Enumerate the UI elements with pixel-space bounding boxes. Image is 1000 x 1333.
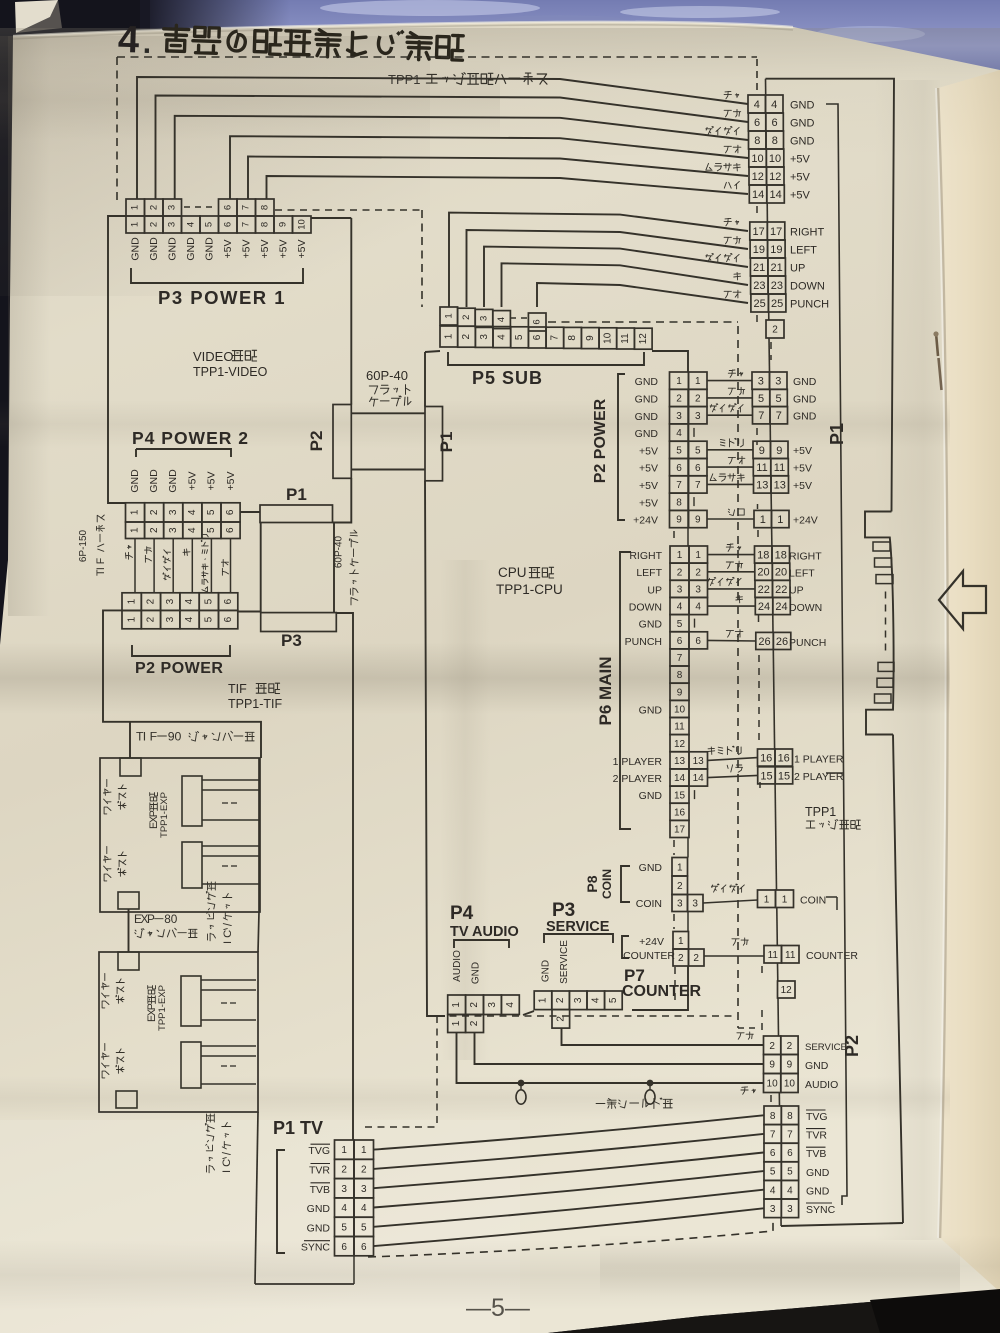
svg-text:6: 6 xyxy=(771,117,777,129)
svg-text:1: 1 xyxy=(451,1020,462,1026)
svg-text:16: 16 xyxy=(778,753,790,765)
svg-text:2: 2 xyxy=(676,394,682,405)
svg-text:P1 TV: P1 TV xyxy=(273,1118,323,1138)
svg-text:GND: GND xyxy=(204,237,216,261)
svg-text:8: 8 xyxy=(772,135,778,147)
svg-text:GND: GND xyxy=(307,1222,331,1234)
svg-text:GND: GND xyxy=(790,118,815,130)
svg-text:9: 9 xyxy=(677,687,683,698)
svg-text:7: 7 xyxy=(770,1130,776,1141)
svg-text:1: 1 xyxy=(451,1002,462,1008)
svg-text:+5V: +5V xyxy=(241,240,253,259)
svg-text:GND: GND xyxy=(793,393,817,405)
svg-text:12: 12 xyxy=(769,171,781,183)
svg-text:6: 6 xyxy=(225,527,236,533)
svg-text:4: 4 xyxy=(184,598,195,604)
svg-text:11: 11 xyxy=(768,950,779,961)
svg-text:.: . xyxy=(142,27,151,60)
svg-text:+5V: +5V xyxy=(222,240,234,259)
svg-text:GND: GND xyxy=(635,376,659,388)
svg-text:13: 13 xyxy=(674,756,686,767)
svg-text:P2 POWER: P2 POWER xyxy=(592,398,609,483)
svg-text:22: 22 xyxy=(758,584,770,596)
svg-text:GND: GND xyxy=(541,960,552,982)
svg-text:AUDIO: AUDIO xyxy=(452,950,463,982)
svg-text:GND: GND xyxy=(635,428,659,440)
svg-text:6: 6 xyxy=(223,616,234,622)
svg-text:UP: UP xyxy=(790,263,805,275)
svg-text:14: 14 xyxy=(769,189,781,201)
svg-text:P4: P4 xyxy=(450,903,474,924)
svg-text:2: 2 xyxy=(772,325,778,336)
svg-text:SYNC: SYNC xyxy=(806,1204,836,1216)
svg-text:+5V: +5V xyxy=(793,445,812,457)
svg-text:5: 5 xyxy=(770,1167,776,1178)
svg-text:+5V: +5V xyxy=(790,190,811,202)
svg-text:F: F xyxy=(150,729,158,743)
svg-text:19: 19 xyxy=(753,244,765,256)
svg-text:—5—: —5— xyxy=(466,1294,530,1322)
svg-text:1: 1 xyxy=(695,550,701,561)
svg-text:3: 3 xyxy=(165,616,176,622)
svg-text:P8: P8 xyxy=(584,875,600,892)
svg-text:2: 2 xyxy=(469,1020,480,1026)
svg-text:+5V: +5V xyxy=(186,472,198,491)
svg-text:P1: P1 xyxy=(437,432,456,453)
svg-text:9: 9 xyxy=(676,515,682,526)
svg-text:GND: GND xyxy=(167,469,179,493)
svg-text:7: 7 xyxy=(787,1130,793,1141)
svg-text:+5V: +5V xyxy=(793,480,812,492)
svg-text:9: 9 xyxy=(278,222,289,227)
svg-text:P1: P1 xyxy=(827,423,847,445)
svg-text:6: 6 xyxy=(223,598,234,604)
svg-text:8: 8 xyxy=(787,1111,793,1122)
svg-text:F: F xyxy=(95,557,107,564)
svg-text:10: 10 xyxy=(784,1079,796,1090)
svg-text:4: 4 xyxy=(695,602,701,613)
svg-text:COUNTER: COUNTER xyxy=(622,983,702,1000)
svg-text:3: 3 xyxy=(758,376,764,388)
svg-text:VIDEO: VIDEO xyxy=(193,349,233,364)
svg-text:3: 3 xyxy=(168,509,179,515)
svg-text:GND: GND xyxy=(790,136,815,148)
svg-text:0: 0 xyxy=(171,912,178,926)
svg-text:7: 7 xyxy=(241,222,252,227)
svg-text:TPP1: TPP1 xyxy=(388,72,421,87)
svg-text:GND: GND xyxy=(148,469,160,493)
svg-text:7: 7 xyxy=(758,410,764,422)
svg-text:6: 6 xyxy=(222,222,233,227)
svg-text:3: 3 xyxy=(573,997,584,1003)
svg-text:2: 2 xyxy=(361,1165,367,1176)
svg-text:UP: UP xyxy=(647,584,662,596)
svg-text:24: 24 xyxy=(758,601,770,613)
svg-text:6: 6 xyxy=(222,205,233,210)
svg-text:GND: GND xyxy=(793,376,817,388)
svg-text:P6 MAIN: P6 MAIN xyxy=(596,657,615,726)
svg-text:1: 1 xyxy=(676,376,682,387)
svg-text:+5V: +5V xyxy=(259,240,271,259)
svg-text:+5V: +5V xyxy=(790,154,811,166)
svg-text:9: 9 xyxy=(695,515,701,526)
svg-text:TPP1-CPU: TPP1-CPU xyxy=(496,582,563,597)
svg-text:14: 14 xyxy=(752,189,764,201)
svg-text:+5V: +5V xyxy=(639,463,658,475)
svg-text:0: 0 xyxy=(175,729,182,743)
svg-text:+5V: +5V xyxy=(296,240,308,259)
svg-text:SERVICE: SERVICE xyxy=(546,919,610,935)
svg-text:2: 2 xyxy=(769,1041,775,1052)
svg-text:6: 6 xyxy=(695,636,701,647)
svg-text:COIN: COIN xyxy=(600,869,614,899)
svg-text:19: 19 xyxy=(770,244,782,256)
svg-text:13: 13 xyxy=(756,479,768,491)
svg-text:4: 4 xyxy=(771,99,777,111)
svg-text:P2 POWER: P2 POWER xyxy=(135,660,223,677)
svg-text:8: 8 xyxy=(754,135,760,147)
svg-text:1: 1 xyxy=(538,997,549,1003)
svg-text:3: 3 xyxy=(479,316,490,321)
svg-text:SERVICE: SERVICE xyxy=(805,1042,847,1053)
svg-text:DOWN: DOWN xyxy=(789,602,822,614)
svg-text:8: 8 xyxy=(677,670,683,681)
svg-text:2: 2 xyxy=(695,394,701,405)
svg-text:CPU: CPU xyxy=(498,565,527,580)
svg-text:9: 9 xyxy=(776,445,782,457)
svg-text:TVB: TVB xyxy=(806,1148,826,1160)
svg-text:+5V: +5V xyxy=(639,480,658,492)
svg-text:4: 4 xyxy=(770,1185,776,1196)
svg-text:12: 12 xyxy=(752,171,764,183)
svg-text:P2: P2 xyxy=(307,431,326,452)
svg-text:GND: GND xyxy=(806,1167,830,1179)
svg-text:2: 2 xyxy=(678,953,684,964)
svg-text:2: 2 xyxy=(695,567,701,578)
svg-text:7: 7 xyxy=(695,480,701,491)
svg-text:GND: GND xyxy=(639,862,663,874)
svg-text:+5V: +5V xyxy=(206,472,218,491)
svg-text:1: 1 xyxy=(130,205,141,210)
svg-text:6: 6 xyxy=(754,117,760,129)
svg-text:5: 5 xyxy=(695,445,701,456)
svg-text:9: 9 xyxy=(585,335,596,341)
svg-text:5: 5 xyxy=(206,509,217,515)
svg-text:13: 13 xyxy=(774,479,786,491)
svg-text:25: 25 xyxy=(753,298,765,310)
svg-text:2: 2 xyxy=(555,1016,566,1022)
svg-text:3: 3 xyxy=(165,598,176,604)
svg-text:C: C xyxy=(221,1159,233,1167)
svg-text:6: 6 xyxy=(787,1148,793,1159)
svg-text:25: 25 xyxy=(771,298,783,310)
svg-text:5: 5 xyxy=(203,598,214,604)
svg-text:4: 4 xyxy=(676,428,682,439)
svg-text:P4 POWER 2: P4 POWER 2 xyxy=(132,428,249,448)
svg-text:20: 20 xyxy=(775,567,787,579)
svg-text:3: 3 xyxy=(787,1204,793,1215)
svg-text:1: 1 xyxy=(126,616,137,622)
svg-text:SERVICE: SERVICE xyxy=(559,940,570,984)
svg-text:16: 16 xyxy=(760,753,772,765)
svg-text:2 PLAYER: 2 PLAYER xyxy=(613,773,663,785)
svg-text:6: 6 xyxy=(341,1242,347,1253)
svg-text:1 PLAYER: 1 PLAYER xyxy=(613,756,663,768)
svg-text:17: 17 xyxy=(674,825,686,836)
svg-text:2: 2 xyxy=(461,315,472,320)
svg-text:4: 4 xyxy=(590,997,601,1003)
svg-text:+5V: +5V xyxy=(790,172,811,184)
svg-text:GND: GND xyxy=(639,619,663,631)
svg-text:21: 21 xyxy=(770,262,782,274)
svg-text:1: 1 xyxy=(678,936,684,947)
svg-text:10: 10 xyxy=(769,153,781,165)
svg-text:3: 3 xyxy=(487,1002,498,1008)
svg-text:UP: UP xyxy=(789,585,804,597)
svg-text:GND: GND xyxy=(307,1203,331,1215)
svg-text:14: 14 xyxy=(674,773,686,784)
svg-text:17: 17 xyxy=(752,226,764,238)
svg-text:4: 4 xyxy=(787,1185,793,1196)
svg-text:23: 23 xyxy=(771,280,783,292)
svg-text:5: 5 xyxy=(514,334,525,340)
svg-text:15: 15 xyxy=(674,790,686,801)
svg-text:8: 8 xyxy=(676,497,682,508)
svg-text:6: 6 xyxy=(677,636,683,647)
svg-text:11: 11 xyxy=(674,722,685,733)
svg-text:TPP1-VIDEO: TPP1-VIDEO xyxy=(193,365,268,379)
svg-text:+5V: +5V xyxy=(639,497,658,509)
svg-text:2: 2 xyxy=(149,509,160,515)
svg-text:8: 8 xyxy=(770,1111,776,1122)
svg-text:8: 8 xyxy=(259,205,270,210)
svg-text:P5 SUB: P5 SUB xyxy=(472,368,543,388)
svg-text:5: 5 xyxy=(204,222,215,227)
svg-text:11: 11 xyxy=(774,462,785,474)
svg-text:1: 1 xyxy=(130,527,141,533)
svg-text:TVR: TVR xyxy=(806,1130,827,1142)
svg-text:TVG: TVG xyxy=(308,1145,330,1157)
svg-text:+5V: +5V xyxy=(793,463,812,475)
svg-text:SYNC: SYNC xyxy=(301,1242,331,1254)
svg-text:8: 8 xyxy=(259,222,270,227)
svg-text:2: 2 xyxy=(677,881,683,892)
svg-text:5: 5 xyxy=(206,527,217,533)
svg-text:12: 12 xyxy=(781,985,793,996)
svg-text:11: 11 xyxy=(785,950,796,961)
svg-text:GND: GND xyxy=(130,237,142,261)
svg-text:60P-40: 60P-40 xyxy=(366,368,408,383)
svg-text:4: 4 xyxy=(341,1203,347,1214)
svg-text:2: 2 xyxy=(146,598,157,604)
svg-text:9: 9 xyxy=(769,1060,775,1071)
svg-text:2: 2 xyxy=(693,953,699,964)
svg-text:GND: GND xyxy=(639,790,663,802)
svg-text:RIGHT: RIGHT xyxy=(789,550,822,562)
svg-text:+5V: +5V xyxy=(225,472,237,491)
svg-text:1: 1 xyxy=(695,376,701,387)
svg-text:P3: P3 xyxy=(281,631,302,650)
svg-text:16: 16 xyxy=(674,807,686,818)
svg-text:6P-150: 6P-150 xyxy=(78,529,89,562)
svg-text:TPP1-EXP: TPP1-EXP xyxy=(157,985,168,1031)
svg-text:7: 7 xyxy=(550,334,561,340)
svg-text:7: 7 xyxy=(676,480,682,491)
svg-text:3: 3 xyxy=(341,1184,347,1195)
svg-text:1 PLAYER: 1 PLAYER xyxy=(794,753,844,765)
svg-text:5: 5 xyxy=(361,1223,367,1234)
svg-text:+5V: +5V xyxy=(639,445,658,457)
svg-text:COUNTER: COUNTER xyxy=(806,950,858,962)
svg-text:COIN: COIN xyxy=(800,895,826,907)
svg-text:TIF: TIF xyxy=(228,682,247,696)
svg-text:1: 1 xyxy=(443,313,454,318)
svg-text:GND: GND xyxy=(793,411,817,423)
svg-text:RIGHT: RIGHT xyxy=(629,550,662,562)
svg-text:3: 3 xyxy=(775,376,781,388)
svg-text:11: 11 xyxy=(620,333,631,344)
svg-text:4: 4 xyxy=(117,19,139,62)
svg-text:23: 23 xyxy=(753,280,765,292)
svg-text:3: 3 xyxy=(770,1204,776,1215)
svg-text:17: 17 xyxy=(770,226,782,238)
svg-text:3: 3 xyxy=(168,527,179,533)
svg-text:1: 1 xyxy=(764,894,770,905)
svg-text:C: C xyxy=(222,930,234,938)
svg-text:5: 5 xyxy=(787,1167,793,1178)
svg-text:26: 26 xyxy=(758,636,770,648)
svg-text:I: I xyxy=(222,941,234,944)
svg-text:2: 2 xyxy=(461,333,472,339)
svg-text:4: 4 xyxy=(496,334,507,340)
svg-text:3: 3 xyxy=(695,585,701,596)
svg-text:6: 6 xyxy=(532,319,543,324)
svg-text:DOWN: DOWN xyxy=(790,281,825,293)
svg-text:+5V: +5V xyxy=(278,240,290,259)
svg-text:DOWN: DOWN xyxy=(629,601,662,613)
svg-text:+24V: +24V xyxy=(793,514,818,526)
svg-text:+24V: +24V xyxy=(633,515,658,527)
svg-text:P: P xyxy=(147,912,155,926)
svg-text:6: 6 xyxy=(361,1242,367,1253)
svg-text:TPP1-EXP: TPP1-EXP xyxy=(159,792,170,838)
svg-text:TPP1: TPP1 xyxy=(805,805,836,819)
svg-text:10: 10 xyxy=(296,219,307,230)
svg-text:18: 18 xyxy=(775,550,787,562)
svg-text:LEFT: LEFT xyxy=(789,568,815,580)
svg-text:COUNTER: COUNTER xyxy=(623,950,675,962)
svg-text:10: 10 xyxy=(603,332,614,344)
svg-text:6: 6 xyxy=(695,463,701,474)
svg-text:2: 2 xyxy=(469,1002,480,1008)
svg-text:6: 6 xyxy=(532,334,543,340)
svg-text:5: 5 xyxy=(341,1223,347,1234)
svg-text:3: 3 xyxy=(677,899,683,910)
svg-text:4: 4 xyxy=(185,222,196,227)
svg-text:TVG: TVG xyxy=(806,1111,828,1123)
svg-text:20: 20 xyxy=(757,567,769,579)
svg-text:GND: GND xyxy=(167,237,179,261)
svg-text:5: 5 xyxy=(758,393,764,405)
svg-text:1: 1 xyxy=(777,514,783,526)
svg-text:TVB: TVB xyxy=(310,1184,330,1196)
svg-text:12: 12 xyxy=(638,333,649,345)
svg-text:22: 22 xyxy=(775,584,787,596)
svg-text:5: 5 xyxy=(203,616,214,622)
svg-text:2: 2 xyxy=(148,222,159,227)
svg-text:P1: P1 xyxy=(286,485,307,504)
svg-text:15: 15 xyxy=(760,770,772,782)
svg-text:13: 13 xyxy=(693,756,705,767)
svg-text:P: P xyxy=(146,1003,158,1010)
svg-text:PUNCH: PUNCH xyxy=(790,299,829,311)
svg-text:3: 3 xyxy=(677,585,683,596)
svg-text:6: 6 xyxy=(676,463,682,474)
svg-text:3: 3 xyxy=(695,411,701,422)
svg-text:10: 10 xyxy=(674,705,686,716)
svg-text:3: 3 xyxy=(676,411,682,422)
svg-text:PUNCH: PUNCH xyxy=(625,636,662,648)
svg-text:GND: GND xyxy=(806,1185,830,1197)
svg-text:AUDIO: AUDIO xyxy=(805,1079,838,1091)
svg-text:2: 2 xyxy=(555,997,566,1003)
svg-text:2: 2 xyxy=(677,567,683,578)
svg-text:3: 3 xyxy=(167,205,178,210)
svg-text:2: 2 xyxy=(148,205,159,210)
svg-text:P3 POWER 1: P3 POWER 1 xyxy=(158,287,286,308)
svg-text:LEFT: LEFT xyxy=(636,567,662,579)
svg-text:3: 3 xyxy=(479,334,490,340)
svg-text:21: 21 xyxy=(753,262,765,274)
svg-text:1: 1 xyxy=(341,1145,347,1156)
svg-text:GND: GND xyxy=(148,237,160,261)
svg-text:5: 5 xyxy=(676,445,682,456)
svg-text:4: 4 xyxy=(187,509,198,515)
svg-text:2: 2 xyxy=(787,1041,793,1052)
svg-text:+24V: +24V xyxy=(639,936,664,948)
svg-text:4: 4 xyxy=(754,99,760,111)
svg-text:8: 8 xyxy=(567,335,578,341)
svg-text:2: 2 xyxy=(146,616,157,622)
svg-text:4: 4 xyxy=(184,616,195,622)
svg-text:1: 1 xyxy=(130,509,141,515)
svg-text:5: 5 xyxy=(677,619,683,630)
svg-text:11: 11 xyxy=(756,462,767,474)
svg-text:GND: GND xyxy=(639,704,663,716)
svg-text:3: 3 xyxy=(692,899,698,910)
svg-text:I: I xyxy=(221,1170,233,1173)
svg-text:GND: GND xyxy=(129,469,141,493)
svg-text:7: 7 xyxy=(241,205,252,210)
svg-text:10: 10 xyxy=(767,1079,779,1090)
svg-text:PUNCH: PUNCH xyxy=(789,637,826,649)
svg-text:3: 3 xyxy=(167,222,178,227)
svg-text:5: 5 xyxy=(608,997,619,1003)
svg-text:2: 2 xyxy=(149,527,160,533)
svg-text:6: 6 xyxy=(770,1148,776,1159)
svg-text:9: 9 xyxy=(759,445,765,457)
svg-text:4: 4 xyxy=(505,1002,516,1008)
svg-text:14: 14 xyxy=(693,773,705,784)
svg-text:1: 1 xyxy=(130,222,141,227)
svg-text:5: 5 xyxy=(775,393,781,405)
svg-text:15: 15 xyxy=(778,770,790,782)
svg-text:1: 1 xyxy=(760,514,766,526)
svg-text:10: 10 xyxy=(751,153,763,165)
svg-text:TVR: TVR xyxy=(309,1165,330,1177)
svg-text:4: 4 xyxy=(677,602,683,613)
svg-text:1: 1 xyxy=(782,894,788,905)
